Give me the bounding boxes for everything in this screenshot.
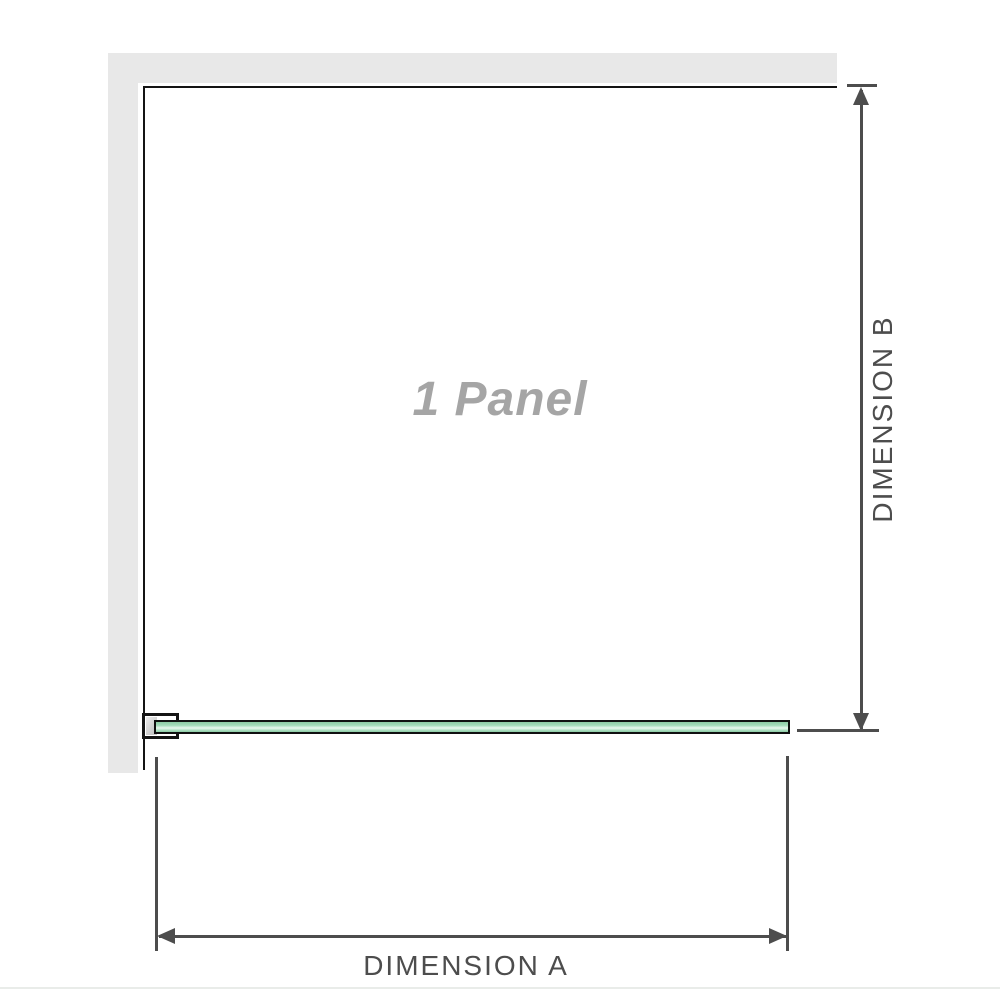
- dimension-a-right-extension-line: [786, 756, 789, 951]
- arrow-right-icon: [769, 928, 787, 944]
- wall-top: [108, 53, 837, 83]
- arrow-down-icon: [853, 713, 869, 731]
- dimension-a-line: [159, 935, 787, 938]
- glass-panel-bar: [154, 720, 790, 734]
- wall-left: [108, 53, 138, 773]
- panel-label: 1 Panel: [250, 368, 750, 432]
- dimension-a-label: DIMENSION A: [266, 950, 666, 982]
- arrow-up-icon: [853, 87, 869, 105]
- dimension-b-label: DIMENSION B: [863, 219, 903, 619]
- bottom-separator: [0, 987, 1000, 989]
- arrow-left-icon: [157, 928, 175, 944]
- dimension-a-left-extension-line: [155, 757, 158, 951]
- dimension-diagram: 1 Panel DIMENSION B DIMENSION A: [0, 0, 1000, 1000]
